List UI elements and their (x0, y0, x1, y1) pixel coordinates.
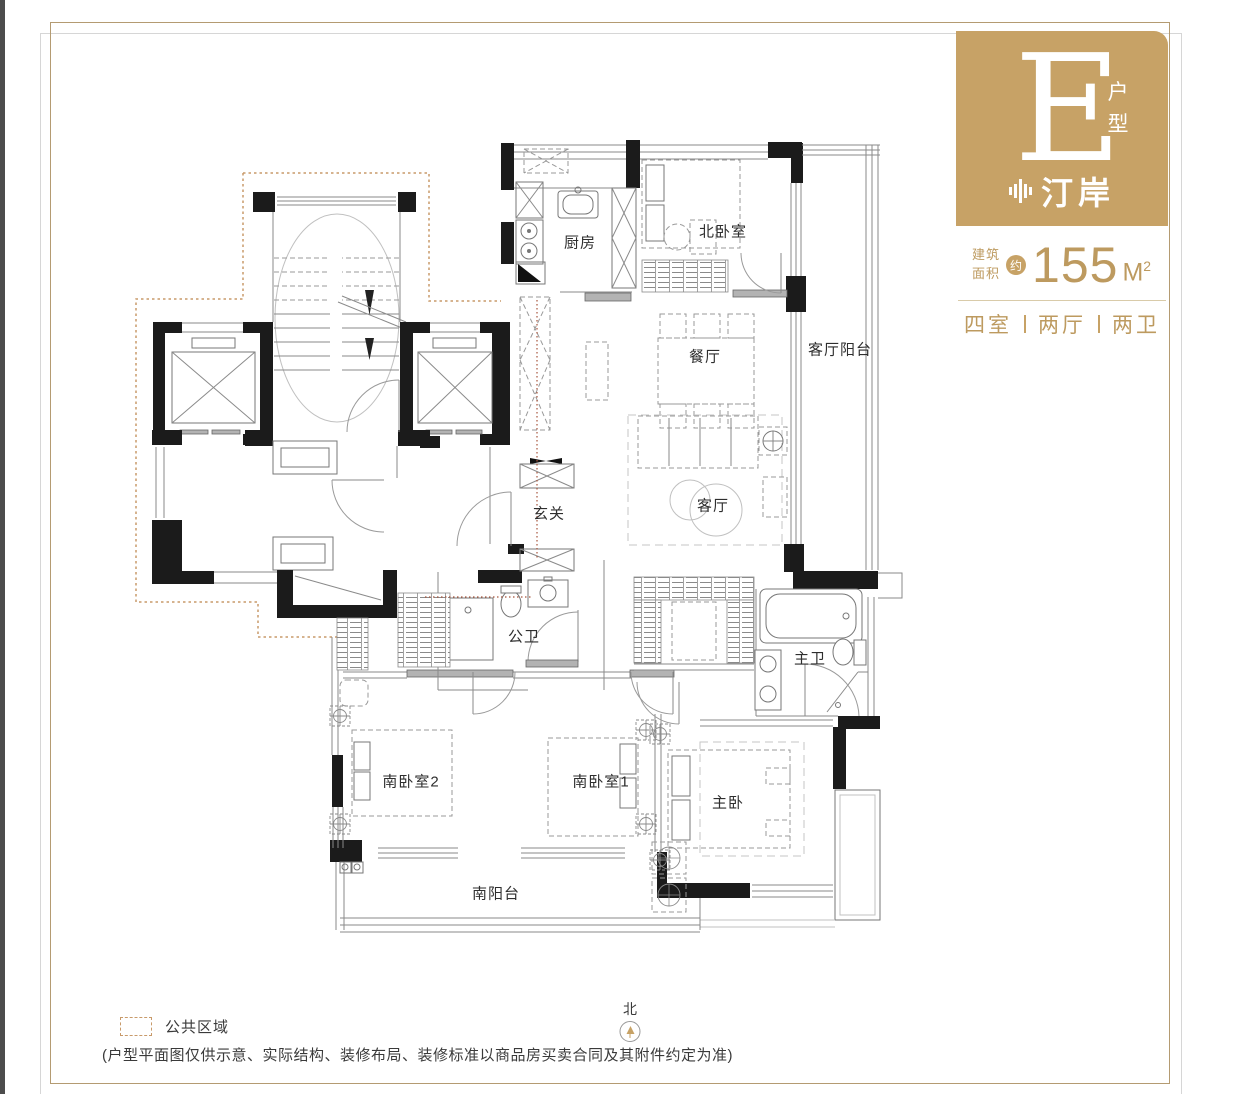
brand-logo-icon (1009, 178, 1032, 204)
layout-separator (1024, 315, 1026, 333)
north-compass: 北 (620, 999, 641, 1042)
room-label-living: 客厅 (697, 495, 729, 516)
public-area-swatch (120, 1017, 152, 1036)
area-divider (958, 300, 1166, 301)
layout-separator (1098, 315, 1100, 333)
room-label-south-bedroom-1: 南卧室1 (572, 771, 629, 792)
area-label-line1: 建筑 (972, 246, 1000, 265)
north-compass-icon (620, 1021, 641, 1042)
elevator-left (153, 322, 273, 445)
unit-letter-suffix: 户型 (1107, 77, 1129, 140)
elevator-right (400, 322, 510, 445)
room-label-living-balcony: 客厅阳台 (808, 339, 872, 360)
unit-letter: E (1014, 35, 1122, 183)
legend-public-area: 公共区域 (120, 1016, 229, 1037)
area-value: 155 (1032, 240, 1118, 290)
layout-summary: 四室 两厅 两卫 (956, 309, 1168, 339)
core-walls (152, 380, 524, 755)
brand-row: 汀岸 (956, 168, 1168, 214)
living-furniture (628, 415, 787, 545)
stair-core (253, 192, 416, 422)
layout-baths: 两卫 (1112, 309, 1160, 339)
room-label-south-bedroom-2: 南卧室2 (382, 771, 439, 792)
bedroom2-furniture (330, 593, 515, 834)
floorplan-page: 厨房 北卧室 餐厅 客厅阳台 客厅 玄关 公卫 主卫 南卧室2 南卧室1 主卧 … (0, 0, 1242, 1094)
room-label-foyer: 玄关 (533, 503, 565, 524)
bedroom1-furniture (548, 672, 673, 836)
area-unit-exponent: 2 (1143, 258, 1151, 274)
room-label-master-bedroom: 主卧 (712, 792, 744, 813)
room-label-master-bath: 主卫 (794, 648, 826, 669)
layout-halls: 两厅 (1038, 309, 1086, 339)
layout-rooms: 四室 (964, 309, 1012, 339)
public-area-boundary (136, 173, 501, 637)
room-label-south-balcony: 南阳台 (472, 883, 520, 904)
doors-misc (741, 253, 781, 293)
room-label-kitchen: 厨房 (564, 232, 596, 253)
north-label: 北 (623, 999, 637, 1019)
area-unit: M2 (1122, 258, 1151, 287)
area-label-line2: 面积 (972, 265, 1000, 284)
room-label-north-bedroom: 北卧室 (699, 221, 747, 242)
disclaimer-text: (户型平面图仅供示意、实际结构、装修布局、装修标准以商品房买卖合同及其附件约定为… (102, 1044, 733, 1065)
room-label-dining: 餐厅 (689, 346, 721, 367)
closet-fixtures (634, 577, 754, 670)
unit-walls (330, 140, 902, 932)
area-panel: 建筑 面积 约 155 M2 四室 两厅 两卫 (956, 240, 1168, 339)
brand-name: 汀岸 (1041, 168, 1115, 214)
unit-card: E 户型 汀岸 (956, 31, 1168, 226)
area-unit-letter: M (1122, 258, 1143, 286)
area-label: 建筑 面积 (972, 246, 1000, 284)
approx-badge: 约 (1006, 255, 1026, 275)
dining-furniture (586, 314, 754, 428)
public-area-label: 公共区域 (165, 1016, 229, 1037)
room-label-public-bath: 公卫 (508, 626, 540, 647)
